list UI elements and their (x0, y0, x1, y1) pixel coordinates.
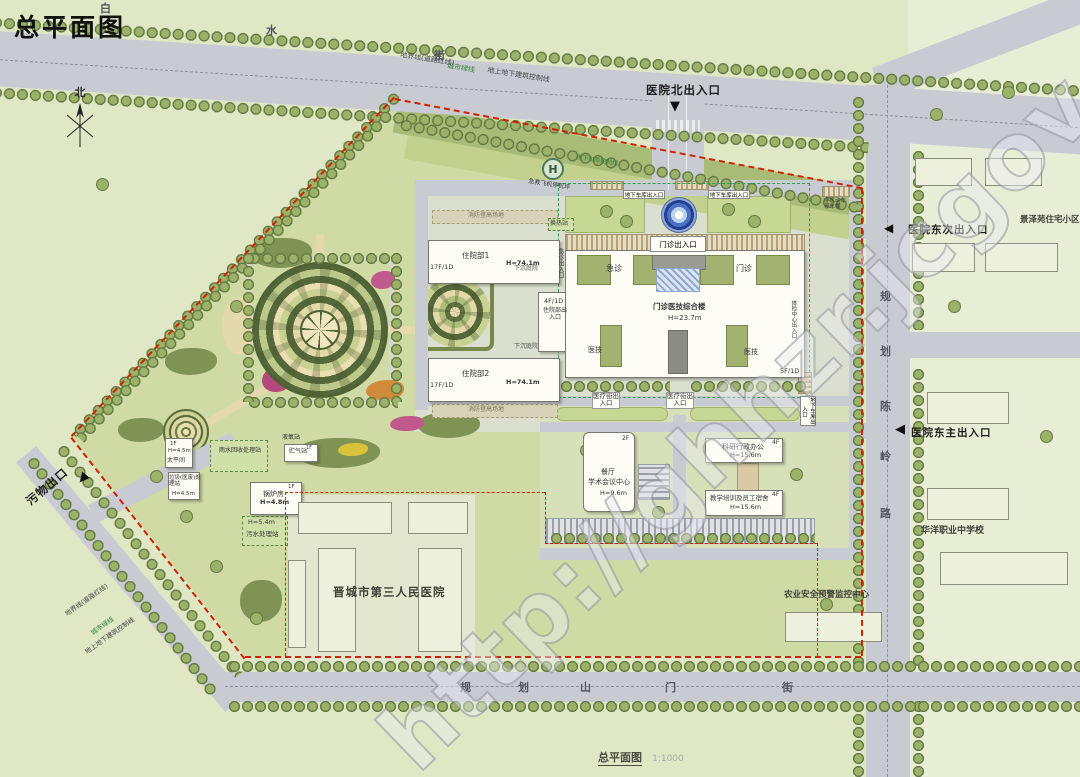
research-name: 科研行政办公 (722, 443, 764, 451)
inpatient-link-floors: 4F/1D (544, 298, 563, 305)
medtech-label-east: 医技 (744, 348, 758, 356)
rainwater-station-area (210, 440, 268, 472)
bottom-street-centerline (225, 686, 1080, 687)
courtyard (756, 255, 790, 285)
boiler-floors: 1F (288, 484, 295, 490)
bottom-street-char: 划 (518, 679, 529, 695)
tree (96, 178, 109, 191)
corridor (737, 463, 759, 492)
inpatient1-name: 住院部1 (462, 252, 489, 261)
tree (230, 300, 243, 313)
tree-row (228, 700, 1080, 713)
tree (652, 506, 665, 519)
tree (210, 560, 223, 573)
tree (150, 470, 163, 483)
caption-scale: 1:1000 (652, 754, 684, 764)
phase-boundary (285, 492, 286, 656)
outpatient-entrance-box: 门诊出入口 (650, 236, 706, 252)
boiler-height: H=4.8m (260, 499, 289, 506)
inpatient1-building (428, 240, 560, 284)
canteen-name1: 餐厅 (601, 468, 615, 476)
existing-building (408, 502, 468, 534)
central-parking (638, 464, 670, 500)
east-side-road (908, 332, 1080, 358)
phase-boundary (545, 492, 546, 544)
tree-column (852, 96, 865, 671)
school-building (927, 488, 1009, 520)
mid-lawn-west (556, 407, 668, 421)
mortuary-height: H=4.5m (168, 448, 191, 454)
residential-building (985, 243, 1058, 272)
dormitory-floors: 4F (772, 492, 779, 499)
canteen-height: H=9.6m (600, 490, 627, 497)
inner-road-south (540, 548, 862, 560)
fire-lane-label-south: 消防登高场地 (468, 407, 504, 414)
red-boundary-south (245, 656, 861, 658)
research-floors: 4F (772, 440, 779, 447)
sewage-name: 污水处理站 (246, 531, 279, 538)
bottom-street-char: 规 (460, 679, 471, 695)
bottom-street-shanmen (225, 672, 1080, 702)
bottom-street-char: 门 (665, 679, 676, 695)
core-block (668, 330, 688, 374)
mid-lawn-east (690, 407, 800, 421)
medtech-label-west: 医技 (588, 346, 602, 354)
rainwater-name: 雨水回收处理站 (214, 448, 266, 455)
tree (948, 300, 961, 313)
tree-column (390, 252, 403, 402)
courtyard (726, 325, 748, 367)
fire-lane-label-north: 消防登高场地 (468, 213, 504, 220)
garage-entrance-label-east: 地下车库出入口 (708, 190, 750, 199)
top-street-char: 街 (434, 47, 445, 63)
tree (250, 612, 263, 625)
east-side-road-top (908, 124, 1080, 142)
emergency-entrance-label: 急诊出入口 (556, 248, 563, 292)
page-title: 总平面图 (14, 8, 126, 44)
mortuary-floors: 1F (170, 441, 177, 447)
inpatient2-floors: 17F/1D (430, 382, 453, 389)
drawing-caption: 总平面图 1:1000 (598, 746, 684, 765)
main-complex-name: 门诊医技综合楼 (653, 303, 706, 312)
inpatient2-building (428, 358, 560, 402)
east-main-entrance-label: 医院东主出入口 (911, 427, 992, 439)
garage-entrance-label-southeast: 地下车库出入口 (800, 396, 816, 426)
courtyard (600, 325, 622, 367)
tree-row (248, 396, 398, 409)
boiler-name: 锅炉房 (263, 490, 284, 498)
plaza-center-star (300, 310, 340, 350)
tree (1002, 86, 1015, 99)
inpatient2-name: 住院部2 (462, 370, 489, 379)
oxygen-name: 液氧站 (282, 435, 300, 442)
huayang-school-label: 华洋职业中学校 (921, 526, 984, 536)
existing-building (298, 502, 392, 534)
helipad: H (542, 158, 564, 180)
east-secondary-entrance-label: 医院东次出入口 (908, 224, 989, 236)
inpatient1-floors: 17F/1D (430, 264, 453, 271)
compass-north-label: 北 (58, 84, 102, 100)
sunken-courtyard-label-1: 下沉庭院 (514, 266, 538, 273)
right-street-char: 划 (880, 343, 891, 359)
bottom-street-char: 街 (782, 679, 793, 695)
tree (930, 108, 943, 121)
residential-building (912, 243, 975, 272)
sewage-height: H=5.4m (248, 519, 275, 526)
residential-building (915, 158, 972, 186)
heat-station-label: 换热站 (550, 221, 568, 228)
compass-needle-icon (63, 101, 97, 149)
caption-name: 总平面图 (598, 751, 642, 766)
residential-building (985, 158, 1042, 186)
right-street-char: 岭 (880, 448, 891, 464)
compass: 北 (58, 84, 102, 153)
main-complex-floors: 5F/1D (780, 368, 799, 375)
existing-building (318, 548, 356, 652)
right-street-char: 规 (880, 288, 891, 304)
emergency-wing-label: 急诊 (606, 264, 622, 273)
phase-boundary (545, 543, 818, 544)
tree-row (228, 660, 1080, 673)
north-entrance-label: 医院北出入口 (646, 84, 721, 97)
east-secondary-entrance-arrow: ◀ (884, 222, 893, 234)
canteen-name2: 学术会议中心 (588, 478, 630, 486)
dormitory-height: H=15.6m (730, 504, 761, 511)
existing-building (418, 548, 462, 652)
jingzeyuan-label: 景泽苑住宅小区 (1020, 216, 1080, 226)
canteen-floors: 2F (622, 436, 629, 443)
garage-entrance-label-west: 地下车库出入口 (623, 190, 665, 199)
medical-street-entrance-east: 医疗街出入口 (666, 392, 694, 409)
red-boundary-east (861, 188, 863, 656)
tree-column (242, 252, 255, 402)
physical-exam-entrance-label: 体检中心出入口 (790, 300, 796, 340)
right-street-char: 陈 (880, 398, 891, 414)
mortuary-name: 太平间 (167, 458, 185, 465)
inpatient-circular-garden (420, 277, 490, 347)
school-building (940, 552, 1068, 585)
tree (1040, 430, 1053, 443)
agri-center-building (785, 612, 882, 642)
outpatient-wing-label: 门诊 (736, 264, 752, 273)
bottom-street-char: 山 (580, 679, 591, 695)
bike-shed-label: 非机动车停车棚 (824, 198, 848, 211)
waste-station-height: H=4.5m (172, 491, 195, 497)
waste-station-name: 垃圾(医废)处理站 (169, 475, 201, 488)
north-entrance-arrow: ▼ (670, 100, 680, 113)
phase-boundary (285, 492, 545, 493)
inpatient-entrance-label: 住院部出入口 (542, 308, 568, 322)
tree-row (248, 252, 398, 265)
existing-building (288, 560, 306, 648)
tree (180, 510, 193, 523)
fountain-plaza (661, 197, 697, 233)
main-complex-height: H=23.7m (668, 314, 702, 322)
east-main-entrance-arrow: ◀ (895, 423, 905, 436)
parcel-line-label-sw: 地界线(道路红线) (64, 583, 110, 618)
site-plan-canvas: H ▼ ◀ ◀ ▼ 医院北出入口 医院东次出入口 医院东主出入口 污物出口 地界… (0, 0, 1080, 777)
research-height: H=15.6m (730, 452, 761, 459)
sunken-courtyard-label-2: 下沉庭院 (514, 344, 538, 351)
inner-road-west (415, 180, 428, 410)
tree (790, 468, 803, 481)
dormitory-name: 教学培训及员工宿舍 (710, 495, 769, 502)
gas-name: 贮气站 (289, 449, 307, 456)
third-hospital-label: 晋城市第三人民医院 (333, 586, 446, 599)
right-street-char: 路 (880, 505, 891, 521)
entrance-hatch-plaza (656, 268, 700, 292)
agri-center-label: 农业安全预警监控中心 (784, 591, 869, 601)
inpatient2-height: H=74.1m (506, 379, 540, 386)
school-building (927, 392, 1009, 424)
right-road-centerline (887, 85, 888, 777)
medical-street-entrance-west: 医疗街出入口 (592, 392, 620, 409)
top-street-char: 水 (266, 22, 277, 38)
tree-column (912, 368, 925, 668)
